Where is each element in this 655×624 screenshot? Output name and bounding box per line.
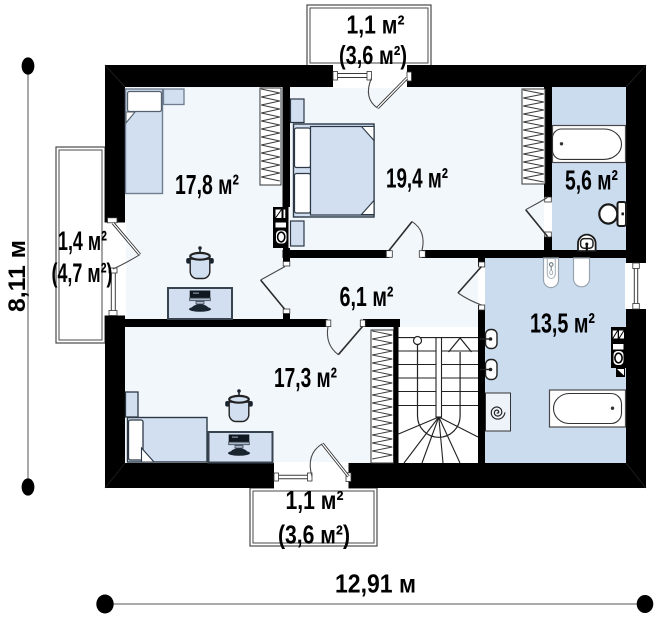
svg-text:(3,6 м²): (3,6 м²) (278, 520, 350, 550)
svg-text:5,6 м²: 5,6 м² (565, 165, 618, 196)
svg-text:19,4 м²: 19,4 м² (386, 163, 448, 194)
svg-text:(3,6 м²): (3,6 м²) (339, 40, 407, 70)
svg-text:17,8 м²: 17,8 м² (175, 169, 239, 200)
svg-text:8,11 м: 8,11 м (4, 240, 31, 312)
svg-text:(4,7 м²): (4,7 м²) (52, 258, 113, 288)
svg-text:12,91 м: 12,91 м (335, 569, 416, 599)
svg-text:17,3 м²: 17,3 м² (274, 362, 337, 393)
svg-text:1,1 м²: 1,1 м² (286, 485, 344, 515)
svg-text:6,1 м²: 6,1 м² (340, 281, 394, 312)
svg-text:1,4 м²: 1,4 м² (58, 226, 107, 256)
svg-text:13,5 м²: 13,5 м² (530, 308, 595, 339)
svg-text:1,1 м²: 1,1 м² (347, 10, 405, 40)
